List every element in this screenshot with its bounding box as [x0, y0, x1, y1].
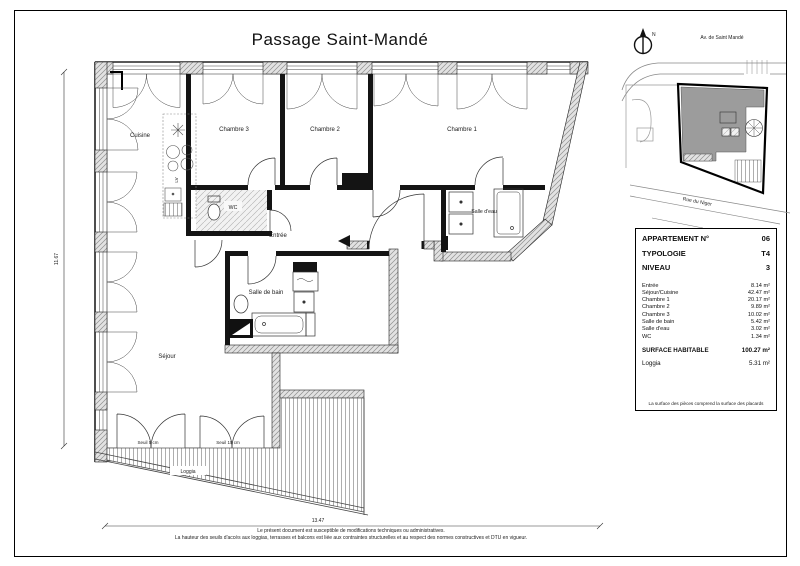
room-area-row: Chambre 29.89 m² [642, 304, 770, 311]
north-arrow-icon [635, 28, 652, 54]
width-dimension: 13.47 [312, 518, 325, 524]
room-area-row: Chambre 310.02 m² [642, 312, 770, 319]
apartment-number-value: 06 [762, 234, 770, 243]
room-label-salle-de-bain: Salle de bain [249, 290, 284, 296]
placards-footnote: La surface des pièces comprend la surfac… [642, 401, 770, 406]
north-label: N [652, 32, 656, 38]
typology-value: T4 [761, 249, 770, 258]
room-label-salle-deau: Salle d'eau [471, 209, 497, 215]
surface-habitable-row: SURFACE HABITABLE100.27 m² [642, 347, 770, 354]
height-dimension: 11.67 [54, 253, 60, 265]
room-label-wc: WC [229, 205, 238, 211]
loggia-area-row: Loggia5.31 m² [642, 360, 770, 367]
level-value: 3 [766, 263, 770, 272]
room-area-row: WC1.34 m² [642, 334, 770, 341]
plan-sheet: Passage Saint-Mandé [0, 0, 800, 566]
room-area-row: Chambre 120.17 m² [642, 297, 770, 304]
shower-room-fixtures [441, 189, 523, 250]
level-label: NIVEAU [642, 263, 670, 272]
apartment-number-label: APPARTEMENT N° [642, 234, 709, 243]
room-area-row: Séjour/Cuisine42.47 m² [642, 290, 770, 297]
apartment-info-panel: APPARTEMENT N°06 TYPOLOGIET4 NIVEAU3 Ent… [635, 228, 777, 411]
room-label-entree: Entrée [269, 233, 287, 239]
fridge-icon [164, 203, 182, 216]
room-area-row: Salle de bain5.42 m² [642, 319, 770, 326]
entrance-arrow-icon [338, 235, 350, 247]
street-bottom-label: Rue du Niger [682, 196, 712, 208]
room-label-cuisine: Cuisine [130, 133, 151, 139]
site-map: N Av. de Saint Mandé [622, 28, 790, 228]
kitchen-fixtures [163, 114, 196, 218]
room-label-chambre1: Chambre 1 [447, 127, 477, 133]
dishwasher-label: LV [174, 177, 179, 182]
seuil-15-label: Seuil 15 cm [216, 440, 240, 445]
disclaimer-line-2: La hauteur des seuils d'accès aux loggia… [15, 535, 687, 542]
seuil-5-label: Seuil 5 cm [137, 440, 158, 445]
room-label-chambre3: Chambre 3 [219, 127, 249, 133]
bathroom-fixtures [229, 272, 318, 338]
typology-label: TYPOLOGIE [642, 249, 686, 258]
loggia-area [95, 398, 368, 515]
street-top-label: Av. de Saint Mandé [700, 35, 743, 41]
neighbor-building [626, 85, 677, 168]
sink-icon [171, 123, 185, 137]
room-label-sejour: Séjour [158, 354, 175, 360]
room-label-chambre2: Chambre 2 [310, 127, 340, 133]
leader-line [652, 218, 703, 228]
room-area-row: Entrée8.14 m² [642, 283, 770, 290]
disclaimer-line-1: Le présent document est susceptible de m… [15, 528, 687, 535]
footer-disclaimer: Le présent document est susceptible de m… [15, 528, 687, 542]
windows [100, 66, 571, 430]
room-areas-list: Entrée8.14 m² Séjour/Cuisine42.47 m² Cha… [642, 283, 770, 341]
room-label-loggia: Loggia [180, 469, 195, 475]
room-area-row: Salle d'eau3.02 m² [642, 326, 770, 333]
